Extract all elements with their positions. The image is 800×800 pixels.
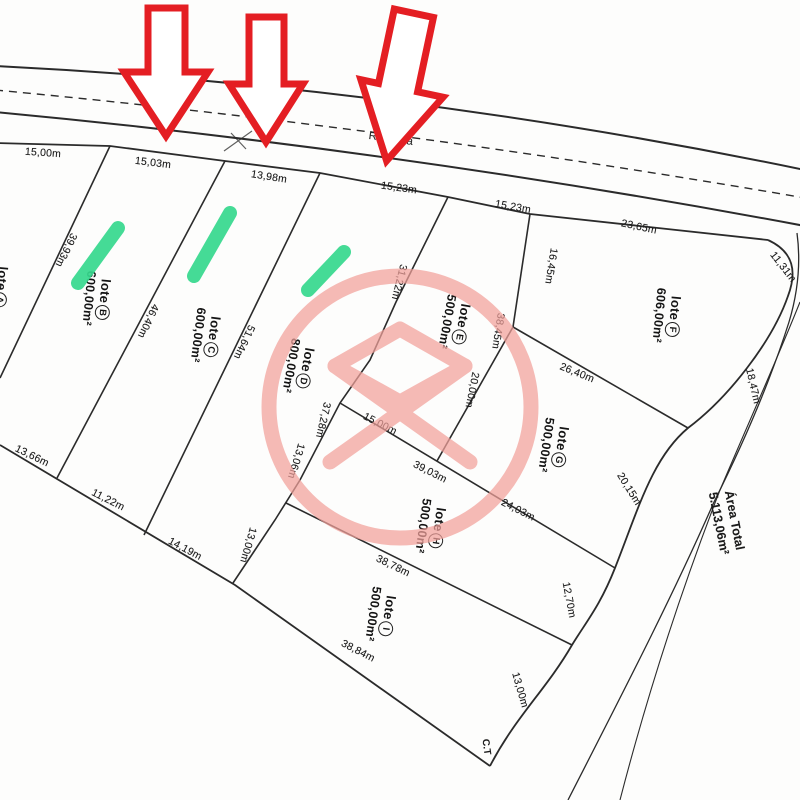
red-arrows <box>124 5 459 169</box>
down-arrow-icon-3 <box>345 5 458 169</box>
down-arrow-icon-1 <box>124 8 208 136</box>
arrow-annotation-layer <box>0 0 800 800</box>
down-arrow-icon-2 <box>229 17 303 142</box>
survey-plat-scan: 15,00m 15,03m 13,98m 15,23m 15,23m 23,65… <box>0 0 800 800</box>
